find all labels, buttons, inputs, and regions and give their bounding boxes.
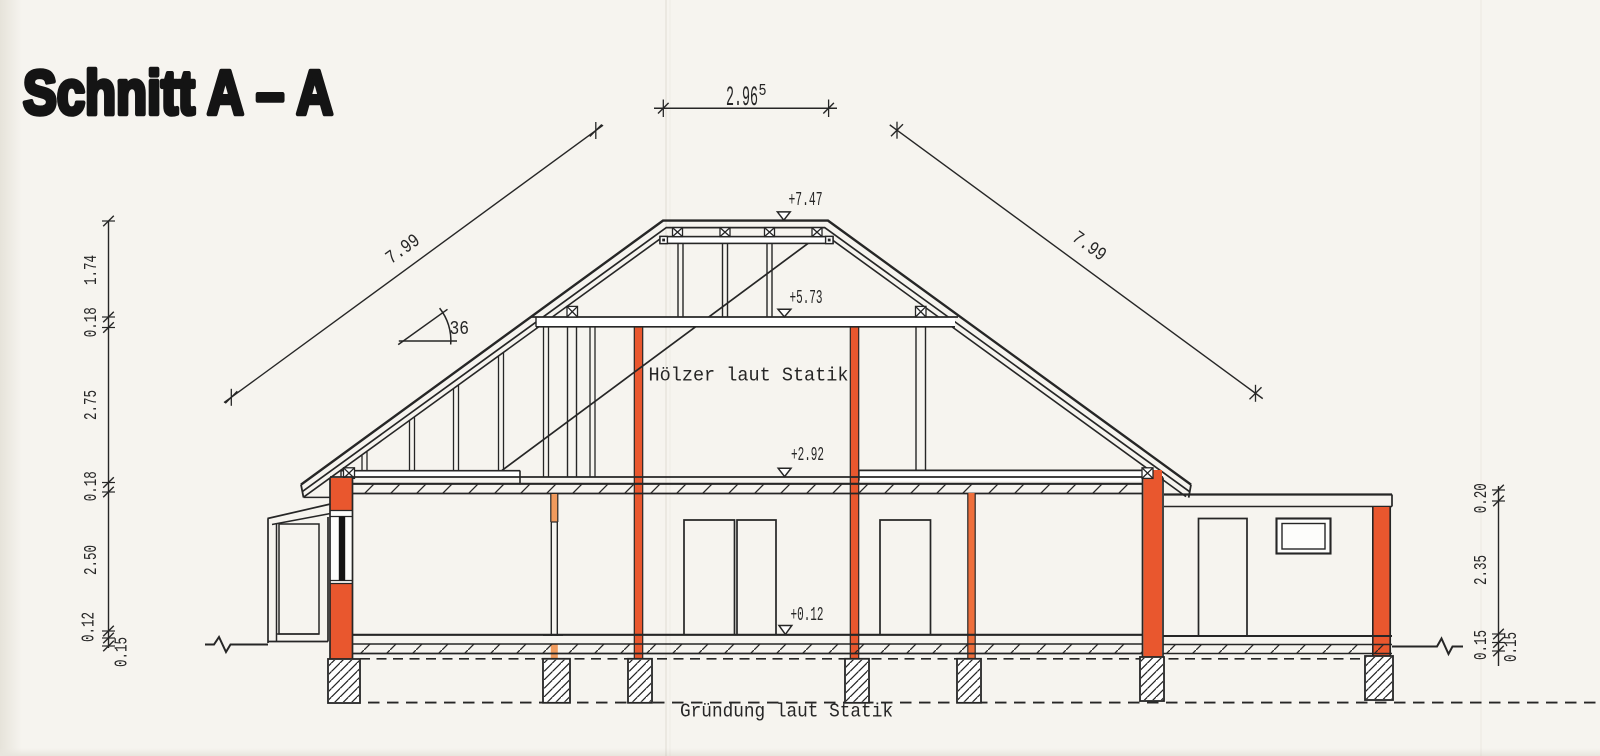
svg-text:2.35: 2.35 xyxy=(1472,555,1492,585)
svg-text:36: 36 xyxy=(450,318,470,340)
svg-text:1.74: 1.74 xyxy=(82,255,102,285)
svg-text:+2.92: +2.92 xyxy=(791,444,824,466)
svg-text:Gründung laut Statik: Gründung laut Statik xyxy=(680,701,893,723)
svg-text:5: 5 xyxy=(759,82,767,101)
svg-text:Hölzer laut Statik: Hölzer laut Statik xyxy=(649,365,849,387)
svg-text:0.20: 0.20 xyxy=(1472,483,1492,513)
svg-text:0.15: 0.15 xyxy=(1472,630,1492,660)
svg-text:Schnitt A – A: Schnitt A – A xyxy=(23,59,333,128)
svg-text:+7.47: +7.47 xyxy=(789,189,823,211)
svg-text:+5.73: +5.73 xyxy=(790,287,823,309)
svg-text:2.75: 2.75 xyxy=(82,390,102,420)
svg-text:+0.12: +0.12 xyxy=(791,604,824,626)
svg-text:0.18: 0.18 xyxy=(82,307,102,337)
svg-text:0.12: 0.12 xyxy=(80,612,100,642)
svg-text:0.15: 0.15 xyxy=(113,637,133,667)
svg-text:0.18: 0.18 xyxy=(82,471,102,501)
svg-text:2.96: 2.96 xyxy=(726,83,758,114)
svg-text:0.15: 0.15 xyxy=(1502,632,1522,662)
svg-text:2.50: 2.50 xyxy=(82,545,102,575)
